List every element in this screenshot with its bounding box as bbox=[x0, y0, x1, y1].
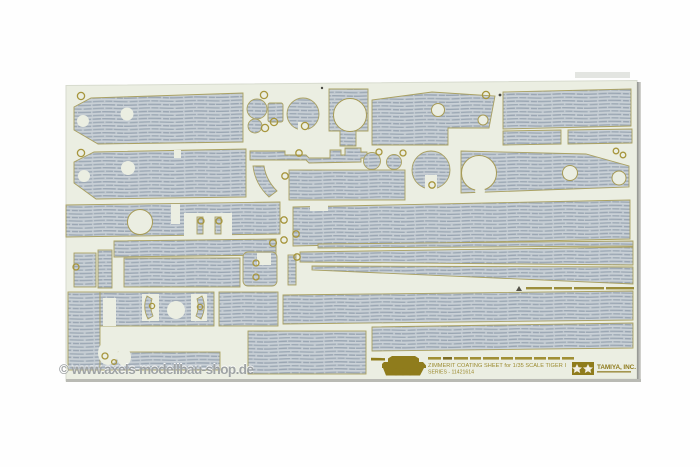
svg-text:ZIMMERIT COATING SHEET for 1/3: ZIMMERIT COATING SHEET for 1/35 SCALE TI… bbox=[428, 363, 566, 369]
svg-text:© www.axels-modellbau-shop.de: © www.axels-modellbau-shop.de bbox=[59, 362, 254, 377]
svg-text:TAMIYA, INC.: TAMIYA, INC. bbox=[597, 364, 636, 371]
svg-text:SERIES - 11421614: SERIES - 11421614 bbox=[428, 370, 474, 376]
